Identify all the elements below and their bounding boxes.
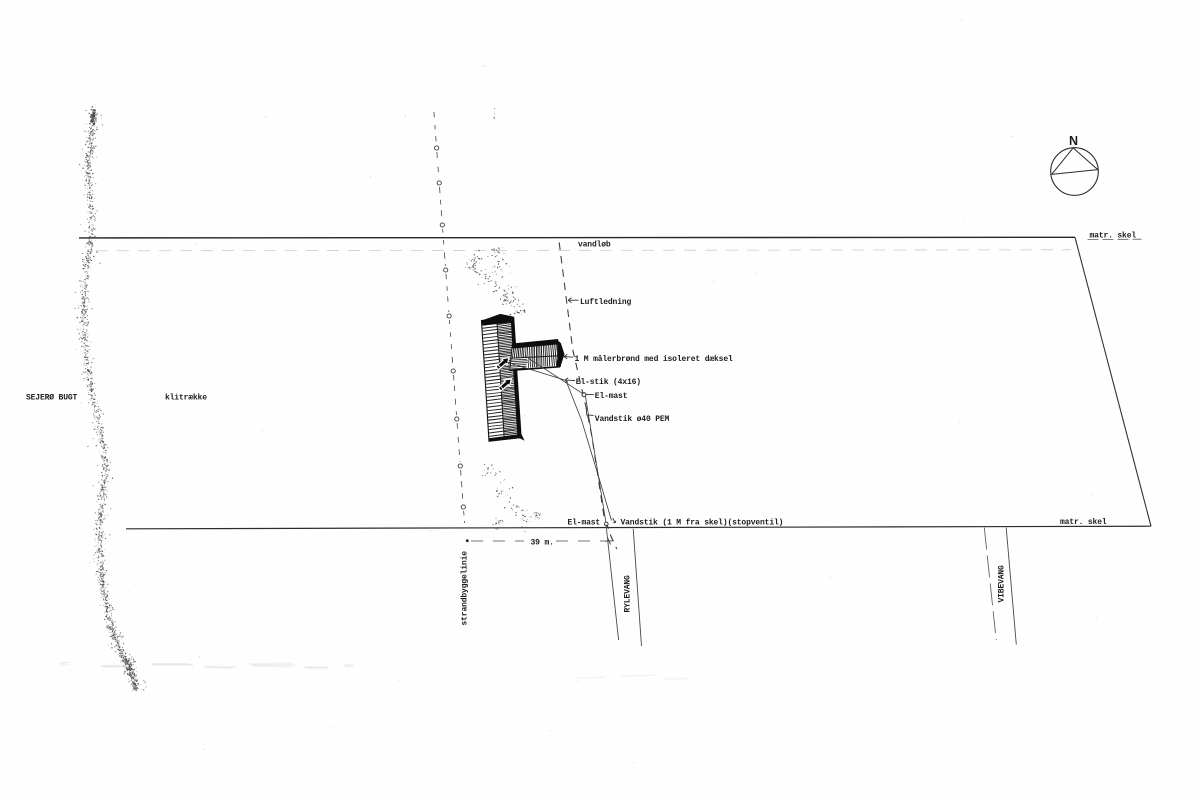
svg-text:SEJERØ BUGT: SEJERØ BUGT — [26, 394, 78, 403]
svg-text:El-mast: El-mast — [595, 392, 628, 401]
svg-text:RYLEVANG: RYLEVANG — [624, 575, 633, 613]
svg-text:matr. skel: matr. skel — [1060, 518, 1107, 527]
svg-text:39 m.: 39 m. — [531, 539, 554, 548]
svg-text:vandløb: vandløb — [578, 241, 611, 250]
svg-text:Vandstik (1 M fra skel)(stopve: Vandstik (1 M fra skel)(stopventil) — [621, 518, 784, 527]
svg-text:matr. skel: matr. skel — [1090, 231, 1137, 240]
svg-text:VIBEVANG: VIBEVANG — [998, 565, 1007, 603]
svg-text:N: N — [1069, 134, 1078, 148]
svg-text:1 M målerbrønd med isoleret dæ: 1 M målerbrønd med isoleret dæksel — [575, 355, 733, 364]
svg-text:El-stik (4x16): El-stik (4x16) — [576, 378, 641, 387]
svg-text:El-mast: El-mast — [568, 518, 601, 527]
svg-text:strandbyggelinie: strandbyggelinie — [461, 551, 470, 626]
svg-text:Vandstik ø40 PEM: Vandstik ø40 PEM — [595, 415, 670, 424]
svg-text:klitrække: klitrække — [165, 394, 207, 403]
svg-text:Luftledning: Luftledning — [580, 298, 632, 307]
